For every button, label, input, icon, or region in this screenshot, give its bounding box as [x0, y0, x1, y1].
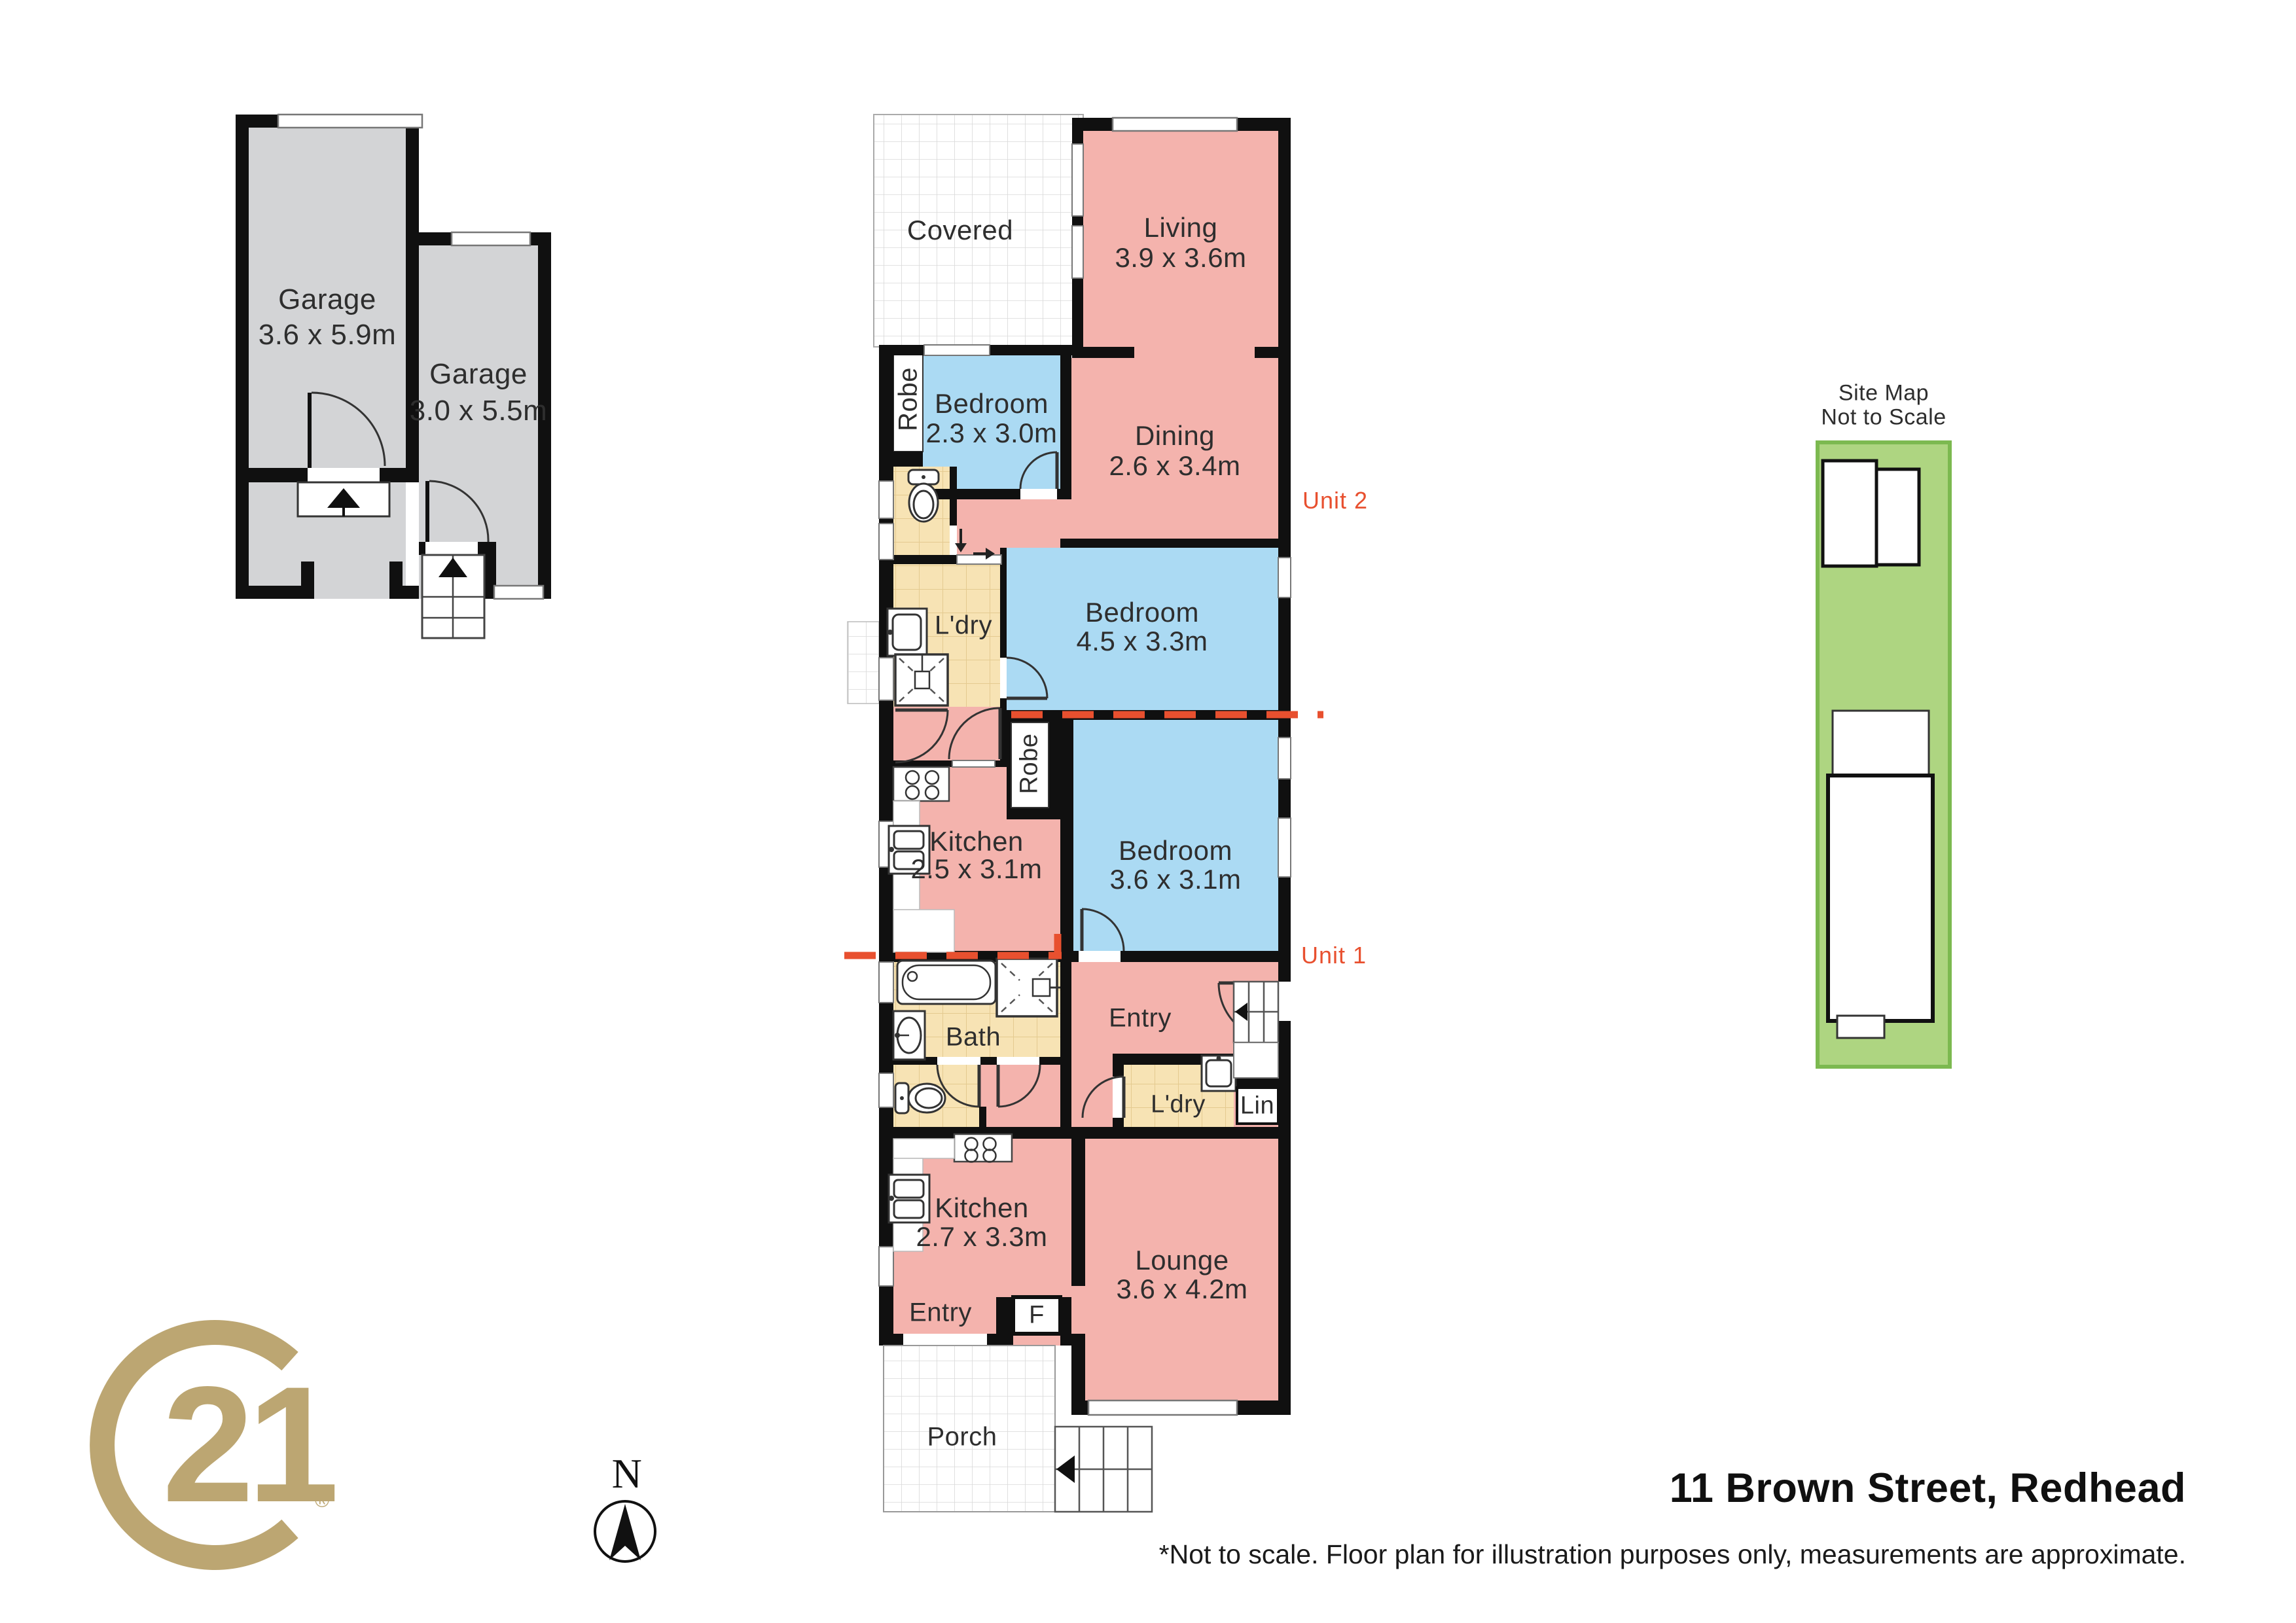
sink-tap [889, 1196, 894, 1201]
tub-inner [903, 965, 990, 999]
site-garage1 [1823, 461, 1876, 566]
site-garage2 [1876, 469, 1919, 565]
sliding-door-track [957, 555, 1001, 564]
sink-icon [888, 609, 927, 656]
label-lin: Lin [1240, 1092, 1274, 1120]
site-map [1818, 442, 1950, 1067]
wall [879, 1334, 903, 1346]
door-opening [937, 1057, 980, 1065]
door-opening [425, 542, 478, 555]
shower-icon [895, 654, 948, 705]
window [1278, 558, 1291, 597]
label-unit2: Unit 2 [1302, 487, 1368, 514]
label-unit1: Unit 1 [1301, 942, 1367, 969]
wall [879, 1127, 1291, 1139]
label-ldry1: L'dry [1151, 1091, 1206, 1119]
door-opening [1000, 658, 1007, 698]
window [278, 115, 422, 128]
door-opening [1020, 489, 1057, 499]
label-bedroom2-name: Bedroom [1085, 597, 1199, 628]
floorplan-page: Garage 3.6 x 5.9m Garage 3.0 x 5.5m Cove… [0, 0, 2296, 1623]
stove-icon [893, 767, 949, 801]
site-covered [1833, 711, 1929, 776]
window [879, 524, 893, 560]
door-opening [308, 468, 380, 482]
label-bedroom3-dims: 3.6 x 3.1m [1109, 864, 1241, 895]
sink-icon [1202, 1056, 1236, 1091]
door-leaf [425, 481, 429, 542]
sink-tap [1217, 1056, 1221, 1061]
wall [1060, 539, 1291, 548]
hall-unit2 [957, 499, 1071, 556]
label-fridge: F [1029, 1302, 1045, 1330]
label-living-name: Living [1144, 212, 1218, 243]
wall [1060, 720, 1073, 951]
shower-head [915, 671, 929, 688]
wall [1071, 1139, 1085, 1286]
stairs-icon [1234, 982, 1278, 1078]
wall [893, 452, 923, 467]
label-kitchen2-dims: 2.5 x 3.1m [910, 853, 1042, 885]
sink-tap [888, 630, 893, 635]
sitemap-title-line1: Site Map [1839, 381, 1929, 406]
label-kitchen1-name: Kitchen [935, 1192, 1029, 1224]
bathtub-icon [897, 961, 996, 1004]
door-opening [1278, 982, 1291, 1021]
door-opening [1113, 1077, 1124, 1118]
wall [1072, 347, 1134, 358]
exterior-tiles [848, 622, 879, 704]
disclaimer-text: *Not to scale. Floor plan for illustrati… [1159, 1539, 2186, 1570]
wall [979, 1107, 986, 1127]
window [879, 1247, 893, 1286]
label-kitchen2-name: Kitchen [929, 826, 1024, 857]
wall [1255, 347, 1291, 358]
kitchen-lounge-opening [1071, 1286, 1085, 1334]
page-title: 11 Brown Street, Redhead [1670, 1465, 2186, 1512]
wall [1060, 347, 1071, 499]
compass [595, 1501, 655, 1561]
label-garage1-dims: 3.6 x 5.9m [259, 319, 396, 351]
toilet-button [900, 1096, 904, 1100]
stove-top [893, 767, 949, 801]
sink-bowl [894, 1180, 924, 1198]
window [1278, 738, 1291, 779]
wall [236, 115, 249, 599]
label-bedroom3-name: Bedroom [1119, 835, 1232, 866]
compass-north-label: N [612, 1450, 643, 1498]
door-opening [1079, 951, 1121, 962]
sink-bowl [893, 615, 921, 650]
window [924, 345, 990, 355]
label-porch: Porch [927, 1423, 997, 1452]
door-opening [997, 1057, 1039, 1065]
wall [950, 467, 957, 526]
toilet-icon [908, 470, 939, 522]
window [1278, 818, 1291, 877]
wall [389, 586, 419, 599]
sliding-door-track [952, 760, 995, 767]
window [494, 586, 543, 599]
label-living-dims: 3.9 x 3.6m [1115, 242, 1246, 274]
wall [1060, 962, 1071, 1127]
sitemap-title-line2: Not to Scale [1821, 405, 1946, 431]
label-ldry2: L'dry [935, 611, 992, 641]
wall [1000, 710, 1291, 720]
label-bedroom1-name: Bedroom [935, 388, 1049, 419]
sink-icon [889, 1175, 929, 1222]
toilet-bowl [916, 1088, 942, 1108]
wall [996, 1297, 1013, 1346]
window [1072, 226, 1083, 278]
shower-icon [997, 959, 1060, 1016]
label-lounge-dims: 3.6 x 4.2m [1116, 1274, 1247, 1305]
toilet-icon [895, 1083, 945, 1113]
label-garage1-name: Garage [278, 283, 376, 316]
sink-bowl [894, 1200, 924, 1218]
garage1-floor [249, 128, 406, 599]
label-robe1: Robe [894, 367, 924, 431]
door-opening [950, 526, 957, 555]
label-bath: Bath [946, 1023, 1001, 1052]
label-robe2: Robe [1016, 734, 1044, 794]
sink-bowl [1206, 1060, 1231, 1086]
label-bedroom2-dims: 4.5 x 3.3m [1076, 626, 1208, 657]
window [879, 658, 893, 700]
sink-bowl [894, 831, 924, 849]
label-garage2-name: Garage [429, 358, 528, 391]
site-house [1828, 776, 1933, 1021]
kitchen-counter [893, 1139, 954, 1158]
label-dining-name: Dining [1135, 420, 1215, 452]
label-covered: Covered [907, 215, 1013, 246]
north-arrow-icon [609, 1504, 641, 1560]
door-opening [903, 1334, 987, 1346]
label-bedroom1-dims: 2.3 x 3.0m [925, 418, 1057, 449]
shower-head [1033, 979, 1050, 996]
label-entry2: Entry [909, 1298, 972, 1328]
window [879, 962, 893, 1003]
wall [236, 586, 314, 599]
toilet-button [922, 475, 925, 479]
stairs-icon [1055, 1427, 1152, 1512]
label-kitchen1-dims: 2.7 x 3.3m [916, 1221, 1047, 1253]
c21-logo-registered: ® [315, 1490, 329, 1512]
label-entry1: Entry [1109, 1004, 1172, 1033]
kitchen-counter [893, 910, 954, 952]
site-porch [1837, 1016, 1884, 1038]
living-dining-opening [1134, 347, 1255, 358]
sink-tap [889, 847, 894, 852]
c21-logo-number: 21 [162, 1363, 332, 1527]
wall [1234, 1078, 1278, 1088]
window [452, 232, 530, 245]
basin-icon [893, 1011, 925, 1060]
window [879, 481, 893, 518]
toilet-bowl [914, 491, 933, 518]
door-leaf [308, 393, 312, 468]
window [879, 1073, 893, 1107]
bath-hall [979, 1065, 1060, 1127]
window [1072, 144, 1083, 216]
label-dining-dims: 2.6 x 3.4m [1109, 450, 1240, 482]
wall [995, 760, 1007, 767]
stove-icon [954, 1134, 1012, 1162]
window [1113, 118, 1237, 131]
label-lounge-name: Lounge [1135, 1245, 1229, 1276]
wall [893, 555, 957, 564]
label-garage2-dims: 3.0 x 5.5m [410, 395, 547, 427]
window [1088, 1400, 1237, 1415]
stair-landing [1234, 1043, 1278, 1078]
